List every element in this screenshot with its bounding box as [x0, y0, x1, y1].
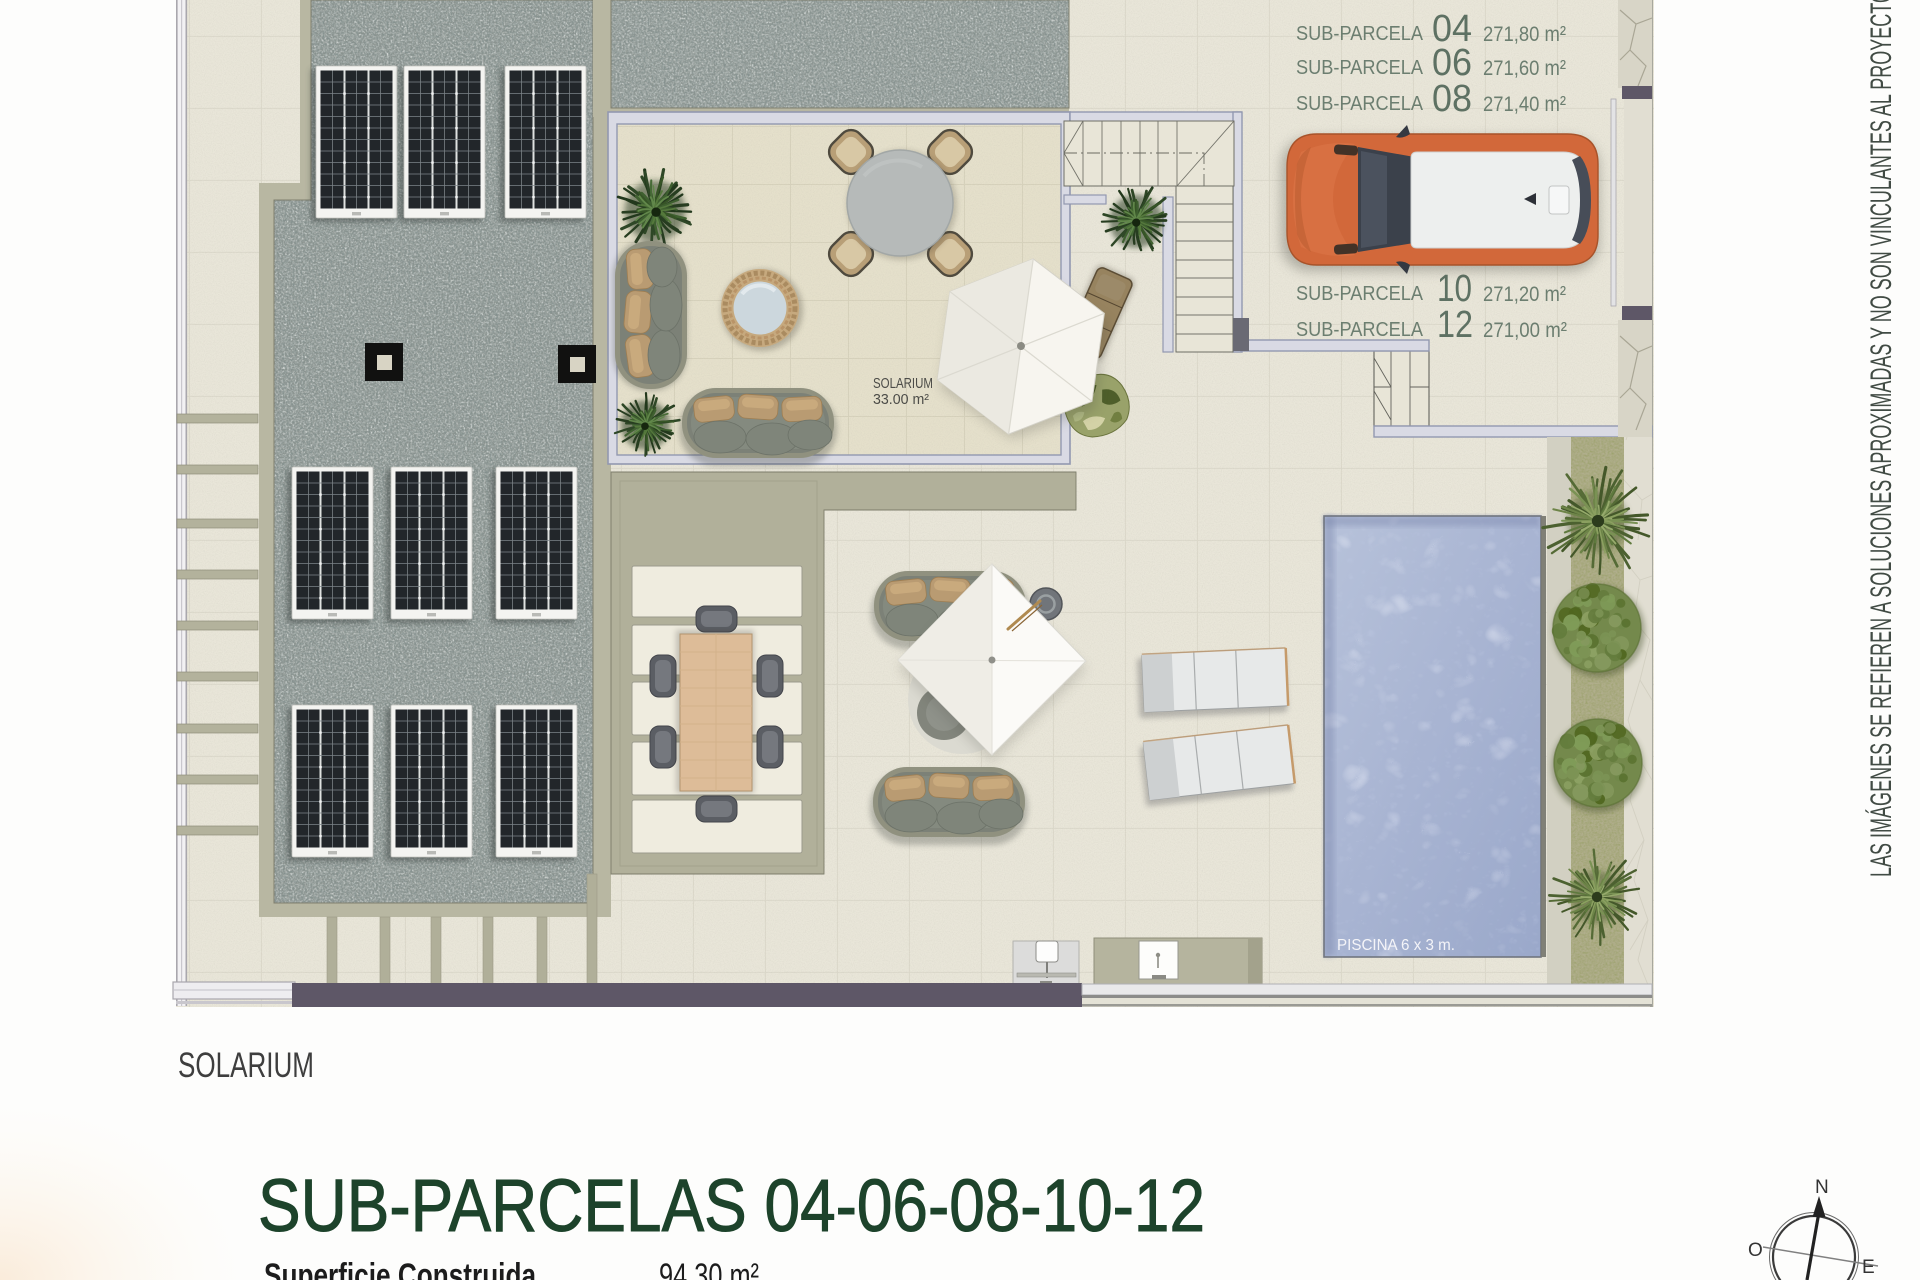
svg-text:271,60 m²: 271,60 m² [1483, 57, 1566, 80]
svg-text:PISCINA 6 x 3 m.: PISCINA 6 x 3 m. [1337, 937, 1455, 954]
svg-text:SUB-PARCELA: SUB-PARCELA [1296, 57, 1424, 79]
svg-text:271,20 m²: 271,20 m² [1483, 283, 1566, 306]
svg-text:O: O [1748, 1240, 1763, 1261]
svg-text:SOLARIUM: SOLARIUM [873, 376, 933, 392]
svg-text:271,40 m²: 271,40 m² [1483, 93, 1566, 116]
svg-text:94,30 m²: 94,30 m² [659, 1257, 759, 1280]
svg-text:E: E [1862, 1257, 1875, 1278]
svg-text:LAS IMÁGENES SE REFIEREN A SOL: LAS IMÁGENES SE REFIEREN A SOLUCIONES AP… [1865, 0, 1898, 877]
svg-text:SUB-PARCELA: SUB-PARCELA [1296, 93, 1424, 115]
svg-text:33.00 m²: 33.00 m² [873, 392, 929, 408]
svg-text:SUB-PARCELA: SUB-PARCELA [1296, 283, 1424, 305]
svg-text:271,80 m²: 271,80 m² [1483, 23, 1566, 46]
svg-text:SOLARIUM: SOLARIUM [178, 1046, 314, 1085]
svg-text:SUB-PARCELA: SUB-PARCELA [1296, 23, 1424, 45]
svg-text:Superficie Construida: Superficie Construida [264, 1257, 537, 1280]
svg-text:271,00 m²: 271,00 m² [1483, 319, 1567, 342]
svg-text:SUB-PARCELA: SUB-PARCELA [1296, 319, 1424, 341]
svg-text:N: N [1815, 1177, 1829, 1198]
svg-text:08: 08 [1432, 78, 1472, 120]
svg-text:SUB-PARCELAS 04-06-08-10-12: SUB-PARCELAS 04-06-08-10-12 [258, 1164, 1205, 1247]
svg-text:12: 12 [1437, 304, 1473, 346]
